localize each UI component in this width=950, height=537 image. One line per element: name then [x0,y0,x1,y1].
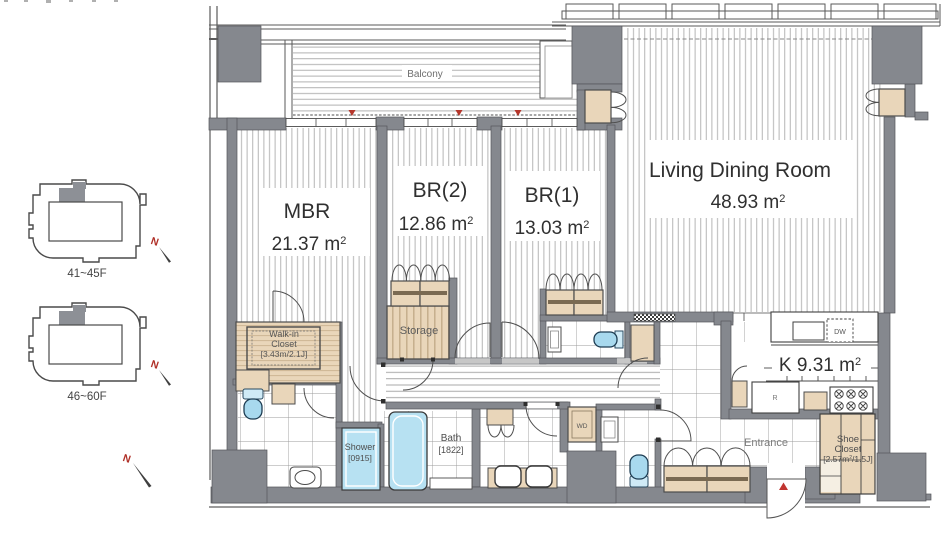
svg-text:46~60F: 46~60F [67,391,106,403]
svg-text:[3.43m/2.1J]: [3.43m/2.1J] [261,349,308,359]
svg-text:Closet: Closet [271,339,297,349]
svg-text:Shower: Shower [345,442,376,452]
svg-text:[0915]: [0915] [348,453,372,463]
svg-text:Storage: Storage [400,325,439,337]
svg-text:MBR: MBR [284,200,331,223]
svg-text:[1822]: [1822] [438,445,463,455]
svg-text:Bath: Bath [441,433,462,444]
svg-text:Entrance: Entrance [744,437,788,449]
svg-text:WD: WD [577,423,588,430]
svg-text:BR(1): BR(1) [525,184,580,207]
svg-text:R: R [772,395,777,402]
svg-text:Walk-in: Walk-in [269,329,299,339]
svg-text:41~45F: 41~45F [67,268,106,280]
svg-text:Living Dining Room: Living Dining Room [649,159,831,182]
svg-text:13.03 m2: 13.03 m2 [515,218,590,239]
svg-text:DW: DW [834,329,846,336]
svg-text:Balcony: Balcony [407,69,443,80]
svg-text:K 9.31 m2: K 9.31 m2 [779,355,861,376]
svg-text:21.37 m2: 21.37 m2 [272,234,347,255]
svg-text:48.93 m2: 48.93 m2 [711,192,786,213]
svg-text:[2.57m2/1.5J]: [2.57m2/1.5J] [823,454,873,464]
svg-text:12.86 m2: 12.86 m2 [399,214,474,235]
svg-text:BR(2): BR(2) [413,179,468,202]
